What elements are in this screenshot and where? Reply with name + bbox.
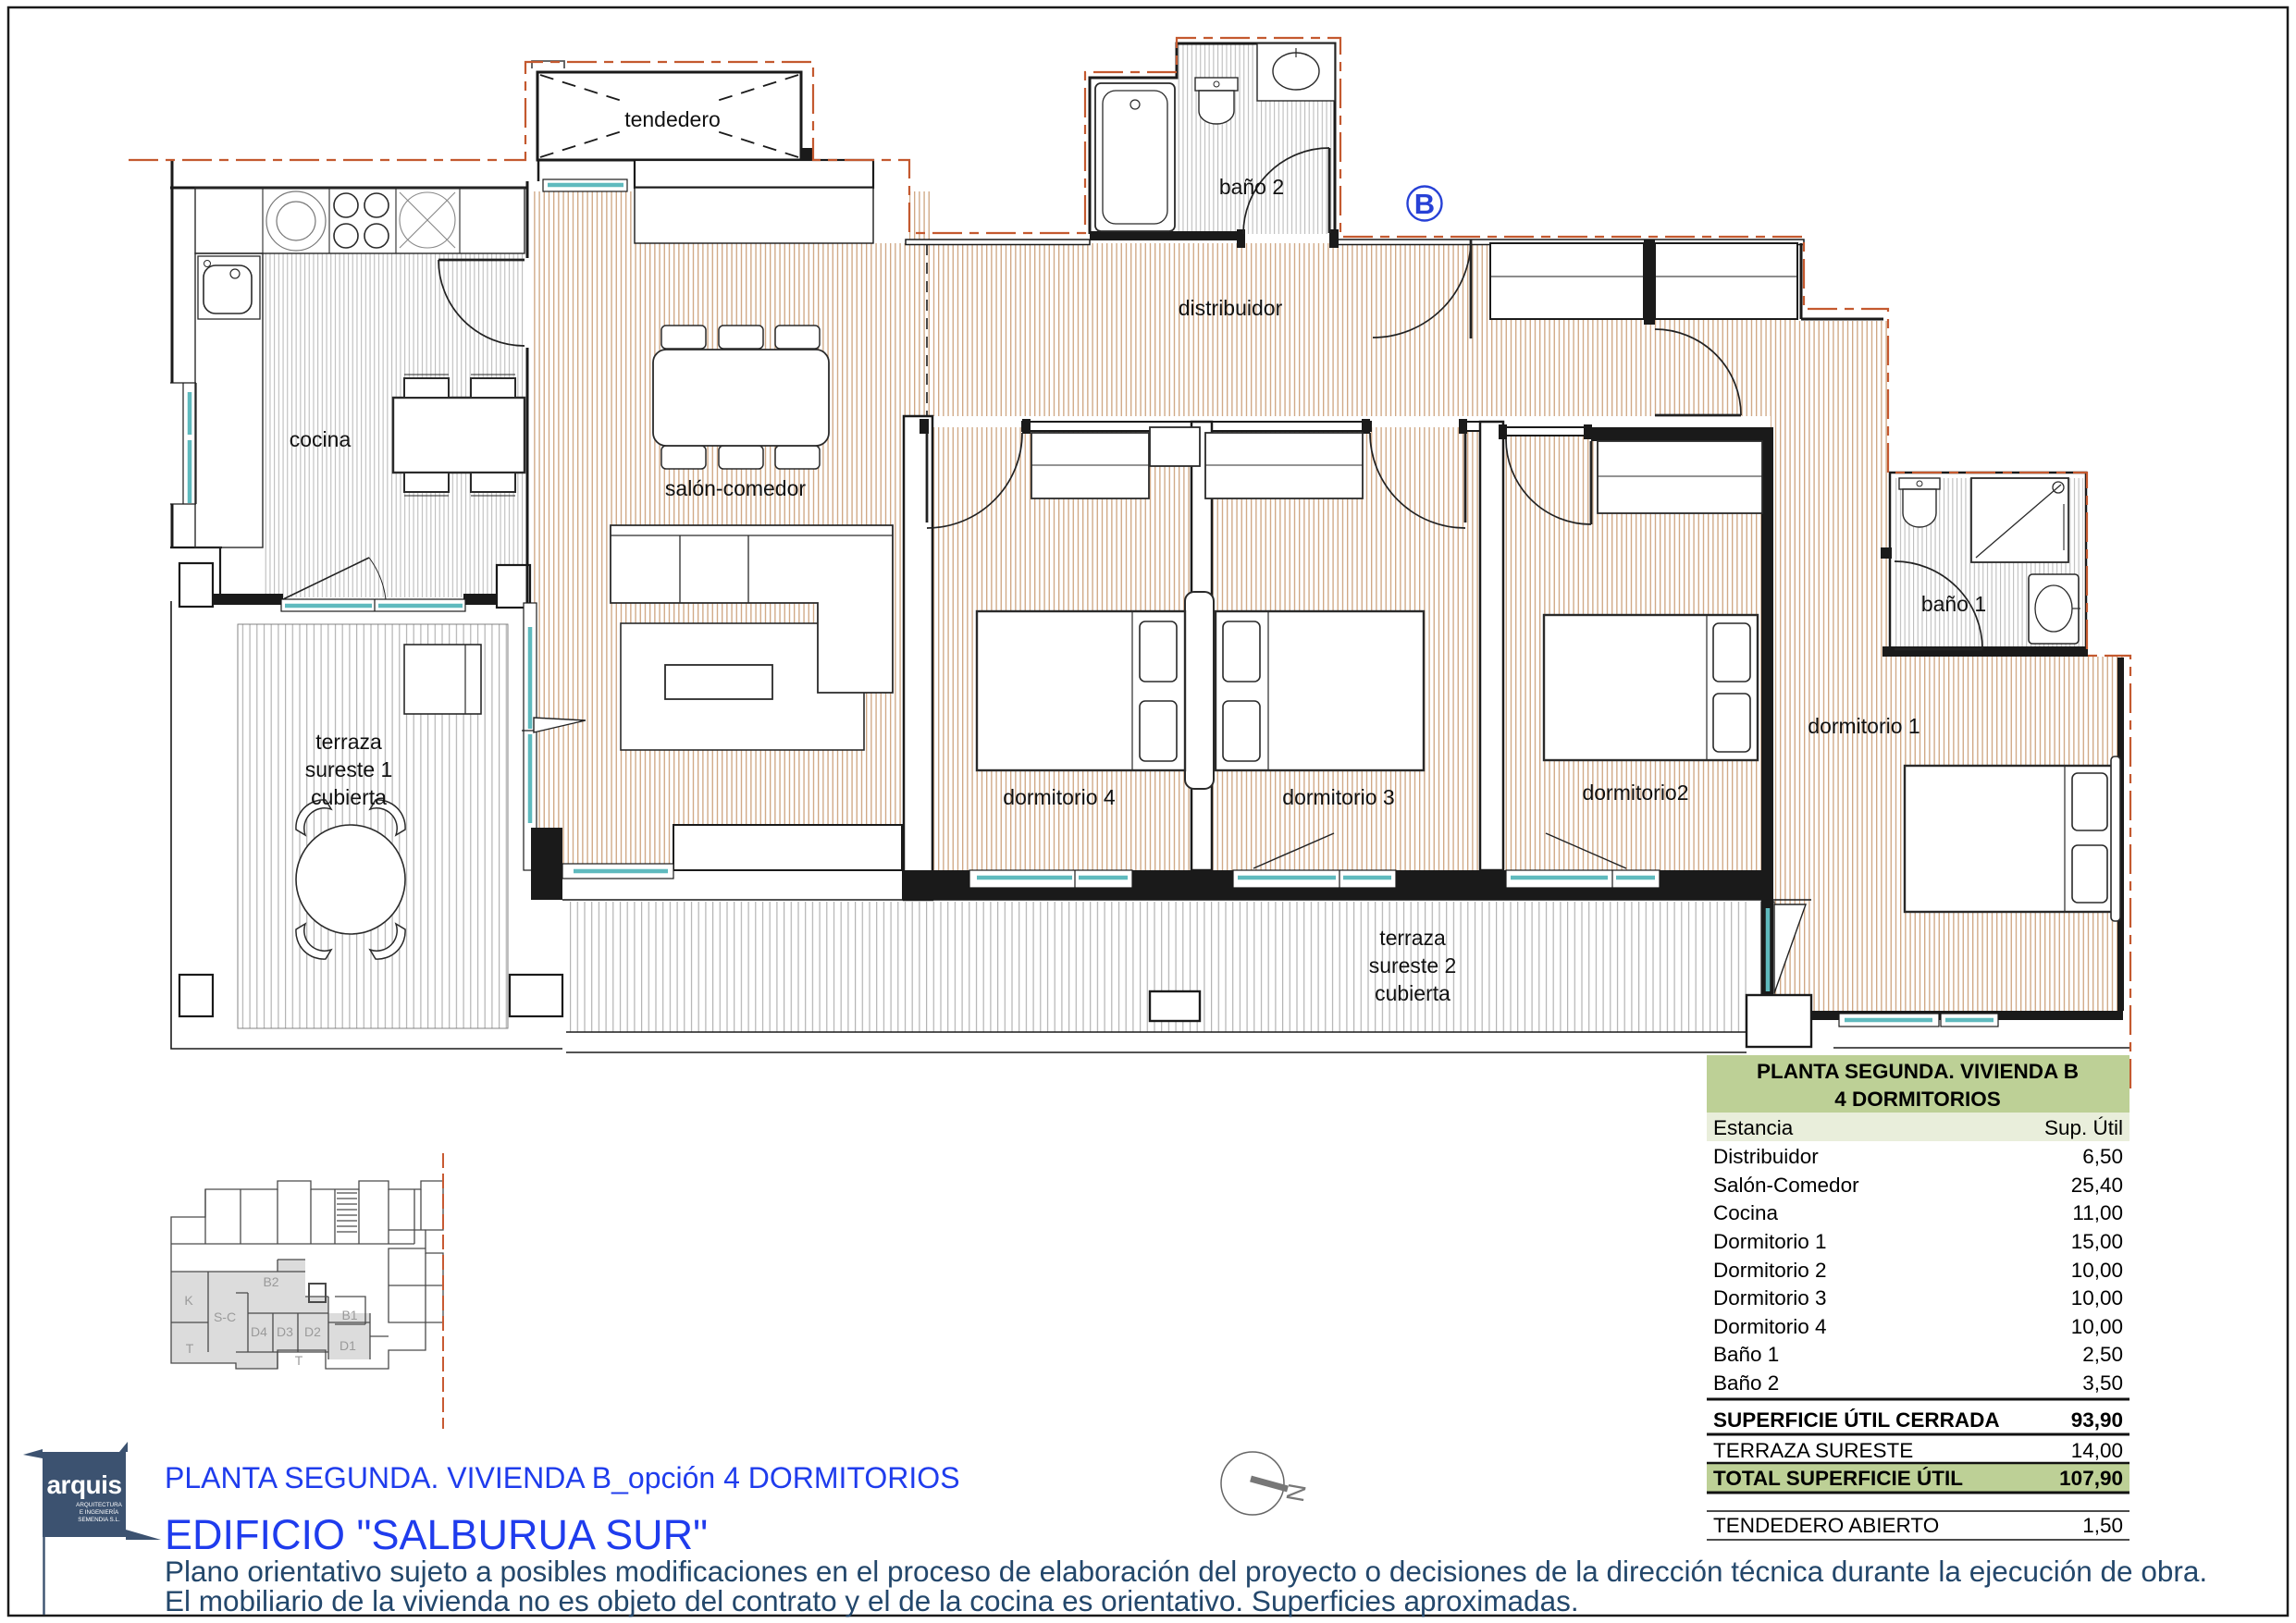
- svg-text:Salón-Comedor: Salón-Comedor: [1713, 1174, 1859, 1197]
- svg-text:6,50: 6,50: [2082, 1145, 2123, 1168]
- svg-text:K: K: [184, 1293, 193, 1308]
- svg-text:3,50: 3,50: [2082, 1371, 2123, 1395]
- svg-text:distribuidor: distribuidor: [1179, 296, 1283, 320]
- svg-text:Dormitorio 4: Dormitorio 4: [1713, 1315, 1827, 1338]
- svg-text:93,90: 93,90: [2071, 1408, 2123, 1432]
- svg-text:D2: D2: [304, 1324, 321, 1339]
- svg-text:14,00: 14,00: [2071, 1439, 2123, 1462]
- svg-text:Sup. Útil: Sup. Útil: [2044, 1116, 2123, 1139]
- svg-text:25,40: 25,40: [2071, 1174, 2123, 1197]
- svg-text:TENDEDERO ABIERTO: TENDEDERO ABIERTO: [1713, 1514, 1939, 1537]
- svg-text:PLANTA SEGUNDA. VIVIENDA B_opc: PLANTA SEGUNDA. VIVIENDA B_opción 4 DORM…: [165, 1461, 960, 1494]
- svg-text:baño 2: baño 2: [1219, 175, 1284, 199]
- svg-text:Estancia: Estancia: [1713, 1116, 1794, 1139]
- svg-text:El mobiliario de la vivienda n: El mobiliario de la vivienda no es objet…: [165, 1584, 1579, 1617]
- svg-text:sureste 1: sureste 1: [305, 757, 393, 781]
- svg-text:arquis: arquis: [46, 1470, 121, 1499]
- svg-text:dormitorio 4: dormitorio 4: [1003, 785, 1116, 809]
- svg-text:dormitorio 3: dormitorio 3: [1282, 785, 1394, 809]
- svg-text:dormitorio 1: dormitorio 1: [1808, 714, 1920, 738]
- svg-text:11,00: 11,00: [2072, 1201, 2123, 1224]
- svg-text:ARQUITECTURA: ARQUITECTURA: [76, 1502, 122, 1508]
- svg-text:10,00: 10,00: [2071, 1315, 2123, 1338]
- svg-text:Baño 1: Baño 1: [1713, 1343, 1779, 1366]
- svg-text:Dormitorio 3: Dormitorio 3: [1713, 1286, 1827, 1309]
- svg-text:D4: D4: [251, 1324, 267, 1339]
- svg-text:2,50: 2,50: [2082, 1343, 2123, 1366]
- svg-text:Distribuidor: Distribuidor: [1713, 1145, 1819, 1168]
- svg-text:D3: D3: [277, 1324, 293, 1339]
- svg-text:S-C: S-C: [214, 1309, 236, 1324]
- svg-text:dormitorio2: dormitorio2: [1582, 781, 1688, 805]
- svg-text:Dormitorio 1: Dormitorio 1: [1713, 1230, 1827, 1253]
- svg-text:D1: D1: [339, 1338, 356, 1353]
- svg-text:PLANTA SEGUNDA. VIVIENDA B: PLANTA SEGUNDA. VIVIENDA B: [1757, 1060, 2079, 1083]
- svg-text:Baño 2: Baño 2: [1713, 1371, 1779, 1395]
- svg-text:B: B: [1414, 188, 1435, 220]
- svg-text:EDIFICIO "SALBURUA SUR": EDIFICIO "SALBURUA SUR": [165, 1511, 708, 1558]
- svg-text:Cocina: Cocina: [1713, 1201, 1779, 1224]
- svg-text:10,00: 10,00: [2071, 1259, 2123, 1282]
- svg-text:10,00: 10,00: [2071, 1286, 2123, 1309]
- svg-text:T: T: [186, 1341, 194, 1356]
- svg-text:baño 1: baño 1: [1921, 592, 1986, 616]
- svg-text:cubierta: cubierta: [311, 785, 387, 809]
- svg-text:sureste 2: sureste 2: [1369, 953, 1457, 977]
- svg-text:tendedero: tendedero: [624, 107, 721, 131]
- svg-text:B1: B1: [341, 1308, 357, 1322]
- svg-text:terraza: terraza: [315, 730, 382, 754]
- svg-text:107,90: 107,90: [2059, 1467, 2123, 1490]
- svg-text:Plano orientativo sujeto a pos: Plano orientativo sujeto a posibles modi…: [165, 1555, 2207, 1588]
- svg-text:15,00: 15,00: [2071, 1230, 2123, 1253]
- svg-text:1,50: 1,50: [2082, 1514, 2123, 1537]
- svg-text:TERRAZA SURESTE: TERRAZA SURESTE: [1713, 1439, 1913, 1462]
- svg-text:T: T: [295, 1353, 303, 1368]
- svg-text:terraza: terraza: [1379, 926, 1446, 950]
- svg-text:cocina: cocina: [290, 427, 352, 451]
- svg-text:B2: B2: [263, 1274, 278, 1289]
- svg-text:SEMENDIA S.L.: SEMENDIA S.L.: [78, 1517, 120, 1523]
- svg-text:4 DORMITORIOS: 4 DORMITORIOS: [1834, 1088, 2001, 1111]
- svg-text:salón-comedor: salón-comedor: [665, 476, 806, 500]
- svg-text:SUPERFICIE ÚTIL CERRADA: SUPERFICIE ÚTIL CERRADA: [1713, 1408, 2000, 1432]
- svg-text:Dormitorio 2: Dormitorio 2: [1713, 1259, 1827, 1282]
- svg-text:E INGENIERÍA: E INGENIERÍA: [80, 1507, 119, 1516]
- svg-text:TOTAL SUPERFICIE ÚTIL: TOTAL SUPERFICIE ÚTIL: [1713, 1467, 1963, 1490]
- svg-text:cubierta: cubierta: [1375, 981, 1450, 1005]
